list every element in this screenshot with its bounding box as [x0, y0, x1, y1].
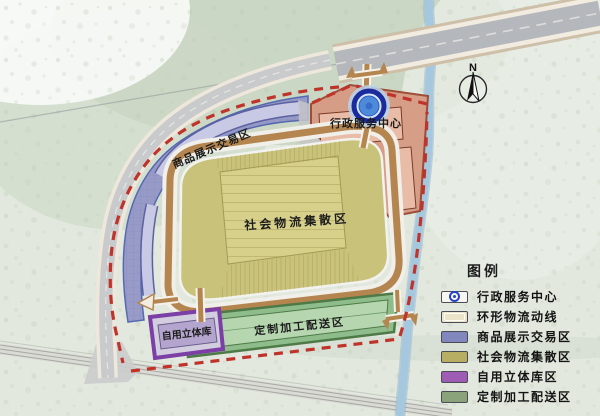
north-label: N [469, 62, 477, 74]
admin-marker-mini-icon [449, 291, 460, 302]
site-plan-map: N 行政服务中心 商品展示交易区 社会物流集散区 定制加工配送区 自用立体库 图… [0, 0, 600, 416]
ring-road-mini-icon [444, 313, 465, 321]
legend-item-label: 自用立体库区 [477, 368, 558, 385]
legend-item: 环形物流动线 [441, 310, 599, 323]
legend: 图例 行政服务中心 环形物流动线 商品展示交易区 社会物流集散区 自用立体库区 [441, 261, 599, 410]
legend-item-label: 商品展示交易区 [477, 328, 572, 345]
legend-swatch-admin-marker [441, 291, 468, 303]
legend-item: 商品展示交易区 [441, 330, 599, 343]
legend-item-label: 社会物流集散区 [477, 348, 572, 365]
legend-item: 行政服务中心 [441, 290, 599, 303]
legend-item-label: 行政服务中心 [477, 288, 558, 305]
legend-item: 定制加工配送区 [441, 390, 599, 403]
legend-item-label: 定制加工配送区 [477, 388, 572, 405]
legend-swatch-ring-road [441, 311, 468, 323]
legend-item-label: 环形物流动线 [477, 308, 558, 325]
legend-swatch-display-zone [441, 331, 468, 343]
legend-item: 自用立体库区 [441, 370, 599, 383]
legend-swatch-processing-zone [441, 391, 468, 403]
legend-swatch-warehouse-zone [441, 371, 468, 383]
admin-zone-label: 行政服务中心 [329, 116, 402, 130]
legend-swatch-logistics-zone [441, 351, 468, 363]
legend-item: 社会物流集散区 [441, 350, 599, 363]
legend-title: 图例 [467, 261, 599, 281]
